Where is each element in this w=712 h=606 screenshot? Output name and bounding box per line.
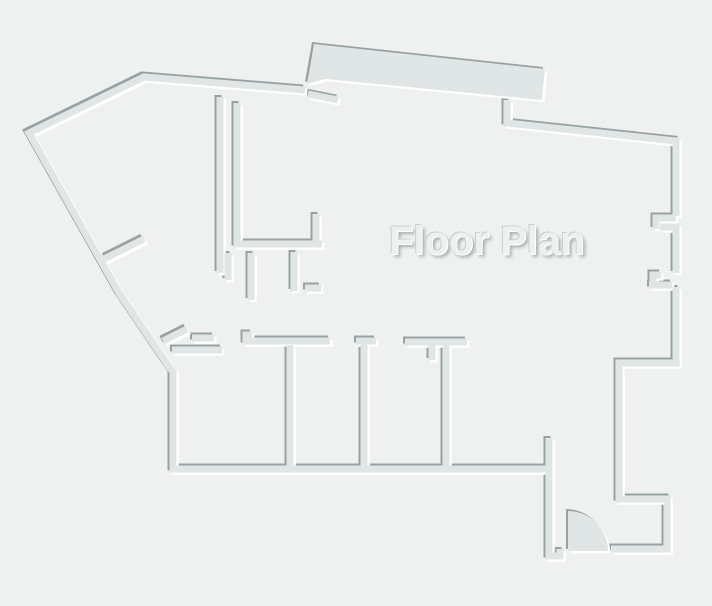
floor-plan-page: Floor Plan	[0, 0, 712, 606]
floor-plan-label: Floor Plan	[389, 219, 585, 264]
floor-plan-drawing	[0, 0, 712, 606]
wall-main-layer	[29, 44, 676, 556]
